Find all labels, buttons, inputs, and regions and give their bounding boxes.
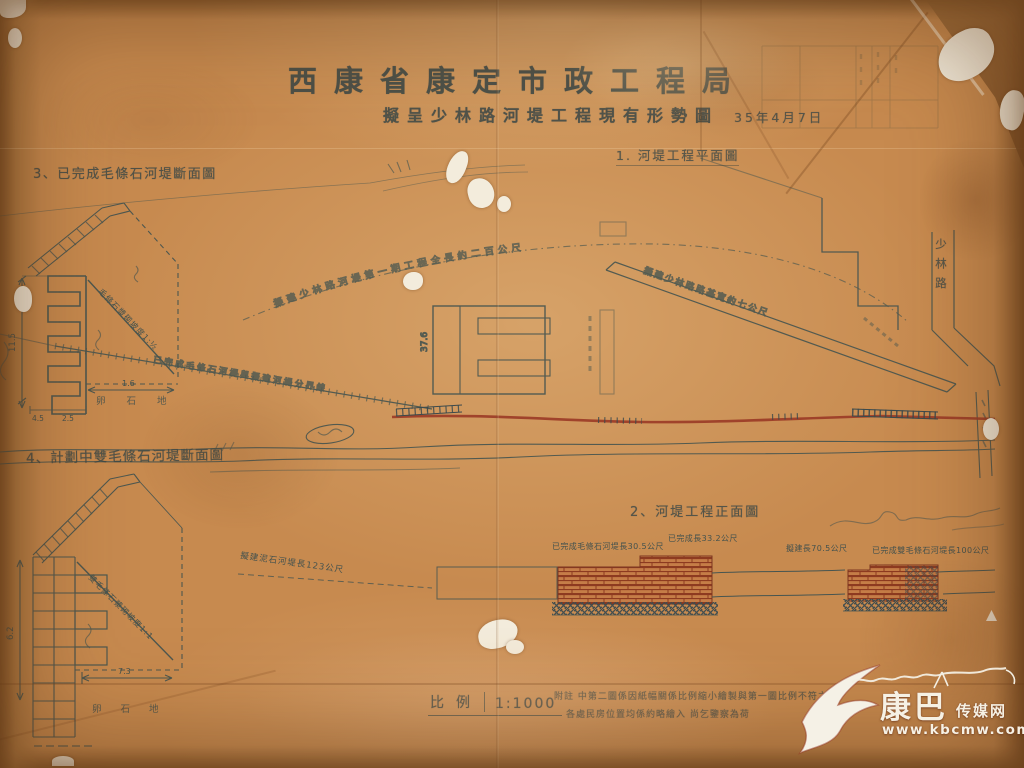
fig4-label: 4、計劃中雙毛條石河堤斷面圖 bbox=[26, 443, 224, 466]
section3-ground-label: 卵 石 地 bbox=[96, 395, 176, 407]
torn-corner bbox=[880, 0, 1024, 168]
section-completed bbox=[0, 203, 178, 414]
section4-slope-note: 雙毛條石漿砌坡度1:1 bbox=[87, 572, 156, 641]
watermark-brand-big: 康巴 bbox=[880, 682, 948, 727]
front-elevation bbox=[238, 556, 995, 615]
section3-width-dim: 1.6 bbox=[122, 379, 135, 388]
watermark-brand-small: 传媒网 bbox=[956, 700, 1007, 721]
scale-label: 比例 bbox=[430, 692, 482, 712]
plan-lower-curve-note: 已完成毛條石河堤與擬建河堤分界線 bbox=[153, 355, 329, 394]
scale-value: 1:1000 bbox=[495, 696, 556, 712]
section3-height-dim: 11.5 bbox=[8, 333, 18, 352]
elevation-ann-wall2: 已完成長33.2公尺 bbox=[668, 533, 738, 543]
embankment-red-line bbox=[392, 405, 995, 422]
section4-width-dim: 7.3 bbox=[118, 667, 131, 676]
elevation-ann-gap: 擬建長70.5公尺 bbox=[786, 543, 847, 553]
section4-ground-label: 卵 石 地 bbox=[92, 703, 167, 715]
page-subtitle: 擬呈少林路河堤工程現有形勢圖 bbox=[383, 102, 719, 126]
shaolin-road-label: 少林路 bbox=[933, 238, 949, 338]
page-title: 西康省康定市政工程局 bbox=[288, 58, 788, 100]
scanned-drawing-page: 擬建少林路河堤第一期工程全長約二百公尺 已完成毛條石河堤與擬建河堤分界線 擬建少… bbox=[0, 0, 1024, 768]
elevation-ann-wall3: 已完成雙毛條石河堤長100公尺 bbox=[872, 545, 989, 555]
fig3-label: 3、已完成毛條石河堤斷面圖 bbox=[33, 163, 217, 182]
watermark-url: www.kbcmw.com bbox=[882, 722, 1024, 738]
fig2-label: 2、河堤工程正面圖 bbox=[630, 501, 760, 520]
watermark: 康巴 传媒网 www.kbcmw.com bbox=[792, 660, 1024, 764]
elevation-ann-left: 擬建泥石河堤長123公尺 bbox=[240, 550, 345, 575]
section3-slope-note: 毛條石漿砌坡度1:½ bbox=[97, 286, 161, 352]
elevation-ann-wall1: 已完成毛條石河堤長30.5公尺 bbox=[552, 541, 664, 551]
section3-toe-a: 4.5 bbox=[32, 414, 44, 423]
scale-row: 比例 1:1000 bbox=[428, 692, 562, 716]
section4-height-dim: 6.2 bbox=[6, 626, 16, 640]
building-dim: 37.6 bbox=[420, 332, 430, 352]
section3-toe-b: 2.5 bbox=[62, 414, 74, 423]
plan-upper-curve-note: 擬建少林路河堤第一期工程全長約二百公尺 bbox=[272, 242, 525, 310]
fig1-label: 1. 河堤工程平面圖 bbox=[616, 145, 739, 166]
date-label: 35年4月7日 bbox=[734, 107, 824, 126]
plan-road-note: 擬建少林路路基寬約七公尺 bbox=[642, 266, 770, 320]
building-outline bbox=[433, 222, 626, 394]
flourish-swoosh bbox=[830, 508, 1000, 526]
scale-divider bbox=[484, 692, 485, 712]
